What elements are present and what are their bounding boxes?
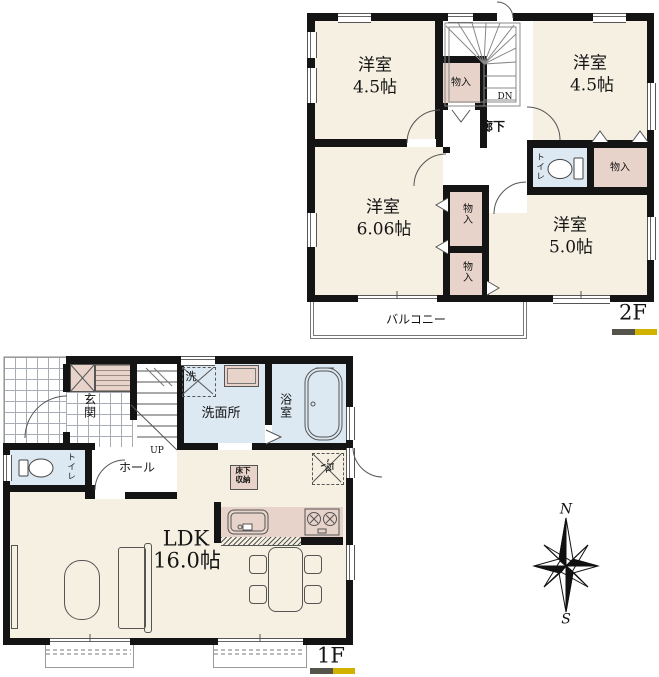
- floor-plan-canvas: 洋室 4.5帖 洋室 4.5帖 洋室 6.06帖 洋室 5.0帖 物入 廊下 D…: [0, 0, 659, 677]
- room-2f-ml-size: 6.06帖: [357, 221, 412, 240]
- toilet-2f-label: トイレ: [534, 153, 543, 182]
- balcony-label: バルコニー: [386, 313, 446, 326]
- room-2f-ml-label: 洋室: [366, 199, 400, 218]
- ldk-size-label: 16.0帖: [153, 549, 221, 572]
- terrace-texture: [46, 650, 304, 654]
- compass-south-label: S: [561, 612, 571, 627]
- entrance-label: 玄関: [82, 393, 95, 419]
- floor-1f-label: 1F: [317, 644, 345, 667]
- stove-icon: [305, 509, 339, 535]
- closet-2f-stair-label: 物入: [451, 78, 471, 89]
- compass-north-label: N: [560, 502, 572, 517]
- line-art-overlay: [0, 0, 659, 677]
- toilet-icon-1f: [19, 459, 53, 477]
- room-2f-tr-size: 4.5帖: [570, 77, 614, 96]
- bath-door-mark: [266, 430, 281, 444]
- room-2f-br-label: 洋室: [553, 217, 587, 236]
- bathroom-label: 浴室: [278, 393, 291, 419]
- closet-2f-mid-upper-label: 物入: [461, 203, 472, 225]
- room-2f-tr-label: 洋室: [573, 55, 607, 74]
- bathtub-icon: [305, 368, 342, 440]
- underfloor-storage-label-2: 収納: [236, 476, 251, 484]
- washer-label: 洗: [186, 371, 197, 383]
- stairs-1f: [131, 368, 177, 450]
- hallway-label: 廊下: [481, 120, 505, 133]
- room-2f-tl-size: 4.5帖: [353, 79, 397, 98]
- door-arcs-2f: [407, 2, 560, 214]
- hall-label: ホール: [119, 461, 155, 474]
- room-2f-tl-label: 洋室: [358, 57, 392, 76]
- compass-rose: [534, 518, 598, 612]
- room-2f-br-size: 5.0帖: [549, 239, 593, 258]
- toilet-1f-label: トイレ: [65, 453, 74, 482]
- floor-2f-label: 2F: [619, 301, 647, 324]
- stairs-up-label: UP: [150, 447, 164, 457]
- ldk-label: LDK: [163, 527, 209, 550]
- x-marks: [71, 365, 341, 482]
- washroom-label: 洗面所: [201, 407, 240, 421]
- underfloor-storage-label-1: 床下: [236, 467, 251, 475]
- toilet-icon-2f: [548, 158, 583, 179]
- closet-2f-mid-lower-label: 物入: [461, 261, 472, 283]
- stairs-down-label: DN: [497, 93, 512, 103]
- porch-outline: [4, 357, 66, 443]
- kitchen-sink-icon: [228, 510, 268, 534]
- closet-2f-right-label: 物入: [610, 163, 630, 174]
